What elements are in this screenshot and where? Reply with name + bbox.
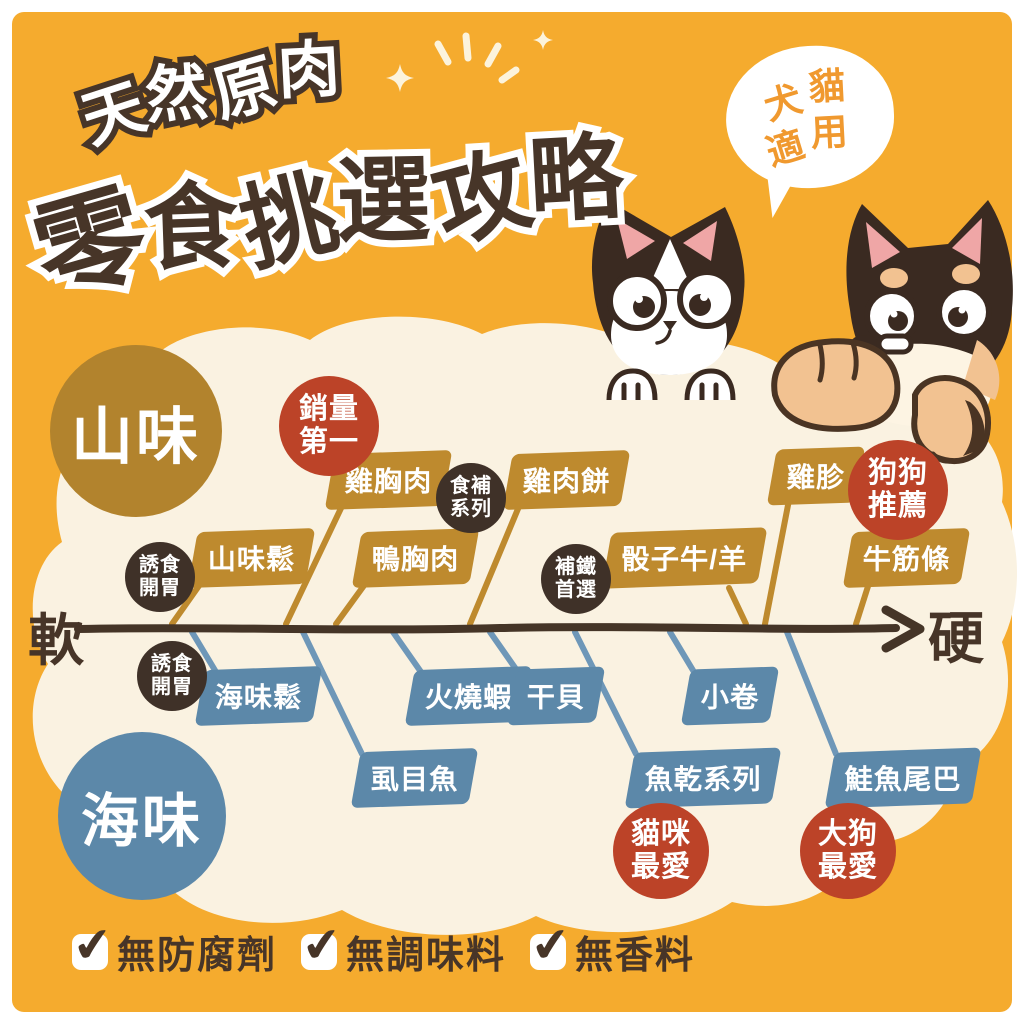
land-flag-dice-beef-lamb: 骰子牛/羊 [602,527,768,588]
checkbox-icon: ✔ [72,934,108,970]
sea-flag-sea-floss: 海味鬆 [195,666,323,726]
land-flag-mountain-floss: 山味鬆 [188,528,316,588]
group-circle-sea: 海味 [58,732,226,900]
badge-iron-first-choice: 補鐵 首選 [541,544,611,614]
footer-item-no-fragrance: ✔ 無香料 [530,924,695,979]
footer-item-no-seasoning: ✔ 無調味料 [301,924,506,979]
checkmark-icon: ✔ [299,915,344,975]
poster: 天然原肉 天然原肉 零食挑選攻略 零食挑選攻略 犬貓 適用 山味 海味 軟 硬 … [0,0,1024,1024]
sea-flag-milkfish: 虱目魚 [351,748,479,808]
checkmark-icon: ✔ [528,915,573,975]
footer-checklist: ✔ 無防腐劑 ✔ 無調味料 ✔ 無香料 [72,924,695,979]
footer-item-no-preservatives: ✔ 無防腐劑 [72,924,277,979]
badge-appetite-land: 誘食 開胃 [125,542,195,612]
checkbox-icon: ✔ [301,934,337,970]
badge-cat-favorite: 貓咪 最愛 [613,803,709,899]
sea-flag-dried-fish-series: 魚乾系列 [625,747,782,808]
badge-big-dog-favorite: 大狗 最愛 [800,803,896,899]
badge-best-seller: 銷量 第一 [279,376,379,476]
badge-nourishing-series: 食補 系列 [436,463,506,533]
sea-flag-scallop: 干貝 [507,666,606,725]
checkmark-icon: ✔ [70,915,115,975]
group-circle-land: 山味 [50,345,222,517]
checkbox-icon: ✔ [530,934,566,970]
land-flag-duck-breast: 鴨胸肉 [352,528,480,588]
badge-dog-recommended: 狗狗 推薦 [848,440,948,540]
axis-label-soft: 軟 [28,596,84,677]
sea-flag-baby-squid: 小卷 [681,666,780,725]
badge-appetite-sea: 誘食 開胃 [137,641,207,711]
sea-flag-salmon-tail: 鮭魚尾巴 [825,747,982,808]
axis-label-hard: 硬 [928,594,984,675]
land-flag-chicken-patty: 雞肉餅 [503,450,631,510]
